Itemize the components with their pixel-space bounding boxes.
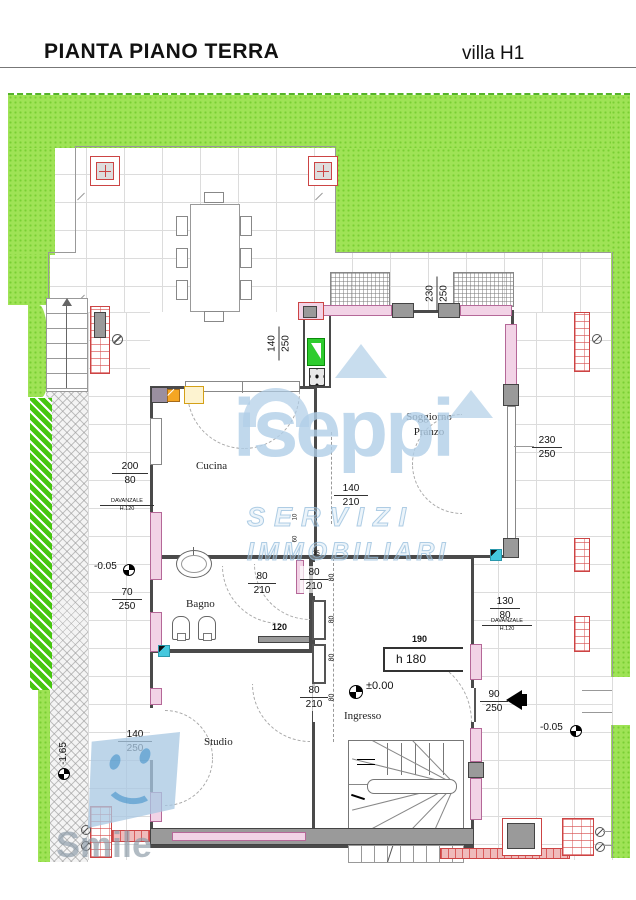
dim-value: 250	[280, 327, 293, 361]
gate-pillar	[507, 823, 535, 849]
window-east-1	[505, 324, 517, 386]
gate-line	[603, 831, 612, 832]
dim-wall80: 80	[328, 574, 335, 582]
window-east-2	[507, 406, 516, 540]
dim-wall35: 35	[313, 551, 320, 557]
awning-hatch	[453, 272, 514, 307]
fridge-icon	[307, 338, 325, 366]
patio-outline-right2	[612, 725, 613, 858]
dim-value: 210	[300, 698, 328, 711]
window-west-small	[150, 688, 162, 705]
entry-arrow-stem	[522, 694, 527, 706]
gate-line	[603, 845, 612, 846]
wall-niche	[312, 644, 326, 684]
dim-niche-width: 190	[412, 634, 427, 644]
sink-kitchen-icon	[184, 386, 204, 404]
steps-up-arrow-icon	[62, 298, 72, 306]
chair	[204, 192, 224, 203]
pergola-pillar	[308, 156, 338, 186]
dim-value: 230	[424, 277, 438, 311]
dim-bagno-door: 80 210	[248, 570, 276, 597]
dim-kitchen-window: 140 250	[266, 327, 293, 361]
sink-basin	[181, 555, 207, 573]
dim-value: 250	[532, 448, 562, 461]
wall-niche	[312, 600, 326, 640]
room-label-soggiorno-line2: Pranzo	[398, 425, 460, 440]
dim-east-sill: DAVANZALE H.120	[482, 618, 532, 632]
lawn-top-right	[335, 148, 614, 253]
dim-wall80: 80	[328, 616, 335, 624]
dim-entry-door: 90 250	[480, 688, 508, 715]
stair-riser	[415, 743, 416, 775]
window-west-studio	[150, 792, 162, 822]
wall-pier	[503, 538, 519, 558]
level-patio-left: -0.05	[94, 561, 117, 572]
fridge-mark	[311, 343, 321, 359]
pillar-section-icon	[314, 162, 332, 180]
room-label-ingresso: Ingresso	[344, 710, 381, 722]
dim-west-sill: DAVANZALE H.120	[100, 498, 154, 512]
lawn-left-lower-strip	[38, 690, 50, 862]
driveway-herringbone	[46, 392, 88, 862]
window-west-200x80	[150, 418, 162, 465]
survey-point-icon	[112, 334, 123, 345]
wall-pier	[468, 762, 484, 778]
window-south-2	[460, 305, 512, 316]
dim-west-window: 200 80	[112, 460, 148, 487]
chair	[240, 248, 252, 268]
dim-hall-door1: 80 210	[300, 566, 328, 593]
bidet-icon	[198, 616, 216, 640]
fence-pier-west	[90, 806, 112, 858]
dim-wall10: 10	[292, 514, 298, 521]
level-zero: ±0.00	[366, 680, 393, 692]
chair	[176, 216, 188, 236]
page-title: PIANTA PIANO TERRA	[44, 40, 279, 64]
dim-value: 250	[438, 277, 451, 311]
dim-value: 230	[532, 434, 562, 448]
window-east-hall	[470, 728, 482, 762]
boiler-icon	[167, 389, 180, 402]
dim-wall80: 80	[328, 654, 335, 662]
dim-wall80: 80	[328, 694, 335, 702]
gate-hinge-icon	[595, 827, 605, 837]
stove-icon	[309, 368, 325, 386]
wc-icon	[172, 616, 190, 640]
dim-value: 210	[248, 584, 276, 597]
level-marker-icon	[58, 768, 70, 780]
gate-hinge-icon	[81, 841, 91, 851]
lawn-right-strip-upper	[611, 95, 630, 677]
dim-niche-height: h 180	[396, 652, 426, 666]
floor-plan-sheet: PIANTA PIANO TERRA villa H1	[0, 0, 636, 900]
window-east-130x80	[470, 644, 482, 680]
room-label-bagno: Bagno	[186, 598, 215, 610]
masonry-pier-east	[574, 312, 590, 372]
dim-studio-window: 140 250	[118, 728, 152, 755]
lawn-left-mid	[8, 255, 50, 305]
dim-value: 140	[118, 728, 152, 742]
dim-east-window: 230 250	[532, 434, 562, 461]
window-south-studio	[172, 832, 306, 841]
chair	[204, 311, 224, 322]
masonry-pier-east	[574, 538, 590, 572]
lawn-left-upper	[8, 148, 55, 255]
passage-dash	[331, 432, 332, 524]
chair	[176, 280, 188, 300]
dim-value: H.120	[100, 506, 154, 513]
patio-outline-right	[612, 252, 613, 677]
level-marker-icon	[570, 725, 582, 737]
villa-label: villa H1	[462, 43, 524, 65]
dim-value: DAVANZALE	[482, 618, 532, 626]
level-marker-icon	[349, 685, 363, 699]
stair-riser	[443, 743, 444, 775]
dim-value: 80	[300, 566, 328, 580]
wall-120	[258, 636, 310, 643]
pedestrian-gate-line	[582, 712, 612, 713]
stair-break-mark	[357, 759, 375, 765]
dim-top-window: 230 250	[424, 277, 451, 311]
survey-point-icon	[592, 334, 602, 344]
dim-value: 200	[112, 460, 148, 474]
dim-value: 80	[248, 570, 276, 584]
dim-value: 140	[266, 327, 280, 361]
dim-value: 80	[300, 684, 328, 698]
dim-value: H.120	[482, 626, 532, 633]
room-label-cucina: Cucina	[196, 460, 227, 472]
hedge-striped-band	[30, 398, 52, 690]
window-east-stair	[470, 778, 482, 820]
dim-value: 250	[118, 742, 152, 755]
stair-arrow-mark	[351, 794, 365, 800]
dim-value: 140	[334, 482, 368, 496]
lawn-left-tongue	[28, 305, 48, 397]
dim-value: 250	[112, 600, 142, 613]
lawn-right-strip-lower	[611, 725, 630, 858]
awning-hatch	[330, 272, 390, 307]
pedestrian-gate-line	[582, 690, 612, 691]
wall-pier	[151, 387, 168, 403]
downspout-icon	[490, 549, 502, 561]
pergola-pillar	[90, 156, 120, 186]
level-marker-icon	[123, 564, 135, 576]
room-label-soggiorno-line1: Soggiorno	[398, 410, 460, 425]
dim-value: 210	[334, 496, 368, 509]
dim-value: DAVANZALE	[100, 498, 154, 506]
pillar-section-icon	[96, 162, 114, 180]
lawn-top-band	[8, 95, 613, 148]
window-west-70x250	[150, 512, 162, 580]
gate-pier	[562, 818, 594, 856]
dim-guide-dash	[333, 558, 334, 742]
level-patio-right: -0.05	[540, 722, 563, 733]
window-south-1	[322, 305, 392, 316]
gate-hinge-icon	[81, 825, 91, 835]
stair-handrail	[367, 779, 457, 794]
chair	[176, 248, 188, 268]
dim-value: 90	[480, 688, 508, 702]
chair	[240, 280, 252, 300]
wall-pier	[392, 303, 414, 318]
dim-value: 80	[112, 474, 148, 487]
boiler-mark	[167, 389, 180, 402]
bidet-base	[203, 633, 212, 641]
entry-arrow-icon	[506, 690, 522, 710]
sink-bagno-icon	[176, 550, 212, 578]
room-label-studio: Studio	[204, 736, 233, 748]
dim-kitchen-pass: 140 210	[334, 482, 368, 509]
wall-pier	[503, 384, 519, 406]
dim-hall-door2: 80 210	[300, 684, 328, 711]
chair	[240, 216, 252, 236]
fence-wall-west	[112, 830, 150, 842]
dim-wall120: 120	[272, 622, 287, 632]
masonry-pier-east	[574, 616, 590, 652]
dim-wall60: 60	[292, 536, 298, 543]
wc-base	[177, 633, 186, 641]
sink-tap	[193, 547, 194, 555]
entry-door-leaf	[474, 688, 476, 722]
room-label-soggiorno: Soggiorno Pranzo	[398, 410, 460, 441]
patio-outline-left	[75, 146, 76, 253]
patio-outline-step	[48, 252, 76, 253]
dim-west-window2: 70 250	[112, 586, 142, 613]
exterior-steps	[46, 298, 88, 392]
dim-value: 250	[480, 702, 508, 715]
level-drive: -1.65	[58, 742, 69, 765]
dim-value: 70	[112, 586, 142, 600]
dining-table	[190, 204, 240, 312]
basement-stair-cut	[385, 845, 393, 863]
header-rule	[0, 67, 636, 68]
gate-hinge-icon	[595, 842, 605, 852]
corner-pier-core	[303, 306, 317, 318]
downspout-icon	[158, 645, 170, 657]
patio-outline-top	[75, 146, 336, 147]
dim-value: 210	[300, 580, 328, 593]
dim-leader	[514, 446, 534, 447]
dim-value: 130	[490, 595, 520, 609]
steps-arrow-line	[66, 302, 67, 388]
patio-outline-left2	[48, 252, 49, 300]
pillar-core	[94, 312, 106, 338]
